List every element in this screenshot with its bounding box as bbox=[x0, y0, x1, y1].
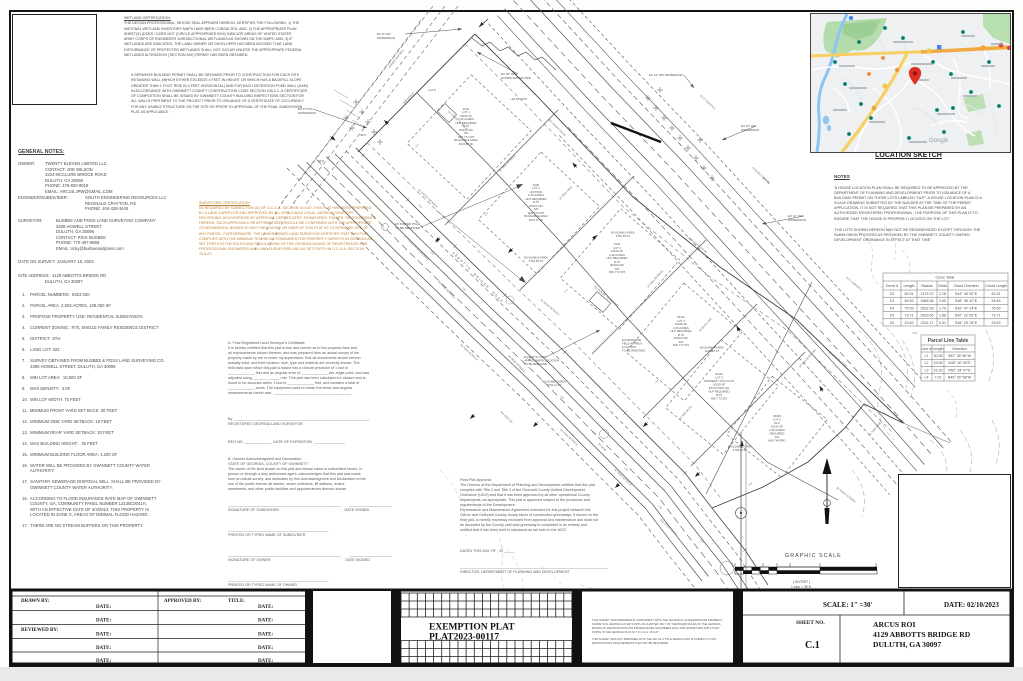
svg-text:DATE:: DATE: bbox=[96, 619, 112, 624]
svg-text:RESTRICTIONS OR EASEMENTS THAT: RESTRICTIONS OR EASEMENTS THAT MAY BE RE… bbox=[592, 641, 669, 645]
svg-text:DATE:: DATE: bbox=[258, 633, 274, 638]
svg-text:DATE:: DATE: bbox=[96, 633, 112, 638]
svg-text:PLAT2023-00117: PLAT2023-00117 bbox=[429, 633, 499, 643]
svg-text:REVIEWED BY:: REVIEWED BY: bbox=[21, 628, 59, 633]
svg-text:SURVEYS IN GEORGIA AS SET FORT: SURVEYS IN GEORGIA AS SET FORTH IN CHAPT… bbox=[592, 622, 721, 626]
svg-text:DULUTH, GA 30097: DULUTH, GA 30097 bbox=[873, 640, 941, 649]
svg-text:DATE:: DATE: bbox=[96, 659, 112, 664]
svg-text:DATE:: DATE: bbox=[258, 646, 274, 651]
svg-text:TITLE:: TITLE: bbox=[228, 599, 245, 604]
svg-text:ARCUS ROI: ARCUS ROI bbox=[873, 620, 915, 629]
svg-text:4129 ABBOTTS BRIDGE RD: 4129 ABBOTTS BRIDGE RD bbox=[873, 630, 971, 639]
svg-text:BOARD OF REGISTRATION FOR PROF: BOARD OF REGISTRATION FOR PROFESSIONAL E… bbox=[592, 626, 720, 630]
svg-text:DATE:: DATE: bbox=[258, 659, 274, 664]
svg-text:DATE:: DATE: bbox=[96, 646, 112, 651]
svg-text:SCALE: 1" =30': SCALE: 1" =30' bbox=[823, 601, 873, 609]
svg-text:C.1: C.1 bbox=[805, 640, 820, 651]
svg-text:DATE:: DATE: bbox=[96, 605, 112, 610]
svg-text:THIS SURVEY WAS PREPARED IN CO: THIS SURVEY WAS PREPARED IN CONFORMITY W… bbox=[592, 618, 723, 622]
svg-text:DRAWN BY:: DRAWN BY: bbox=[21, 599, 50, 604]
svg-text:THIS SURVEY WAS NOT PREPARED W: THIS SURVEY WAS NOT PREPARED WITH THE AI… bbox=[592, 637, 717, 641]
svg-text:DATE: 02/10/2023: DATE: 02/10/2023 bbox=[944, 601, 999, 609]
svg-text:EXEMPTION PLAT: EXEMPTION PLAT bbox=[429, 623, 515, 633]
svg-text:APPROVED BY:: APPROVED BY: bbox=[164, 599, 202, 604]
svg-text:FORTH IN THE GEORGIA PLAT ACT: FORTH IN THE GEORGIA PLAT ACT O.C.G.A. 1… bbox=[592, 630, 660, 634]
svg-text:SHEET NO.: SHEET NO. bbox=[796, 620, 825, 626]
svg-text:DATE:: DATE: bbox=[258, 619, 274, 624]
svg-text:DATE:: DATE: bbox=[258, 605, 274, 610]
